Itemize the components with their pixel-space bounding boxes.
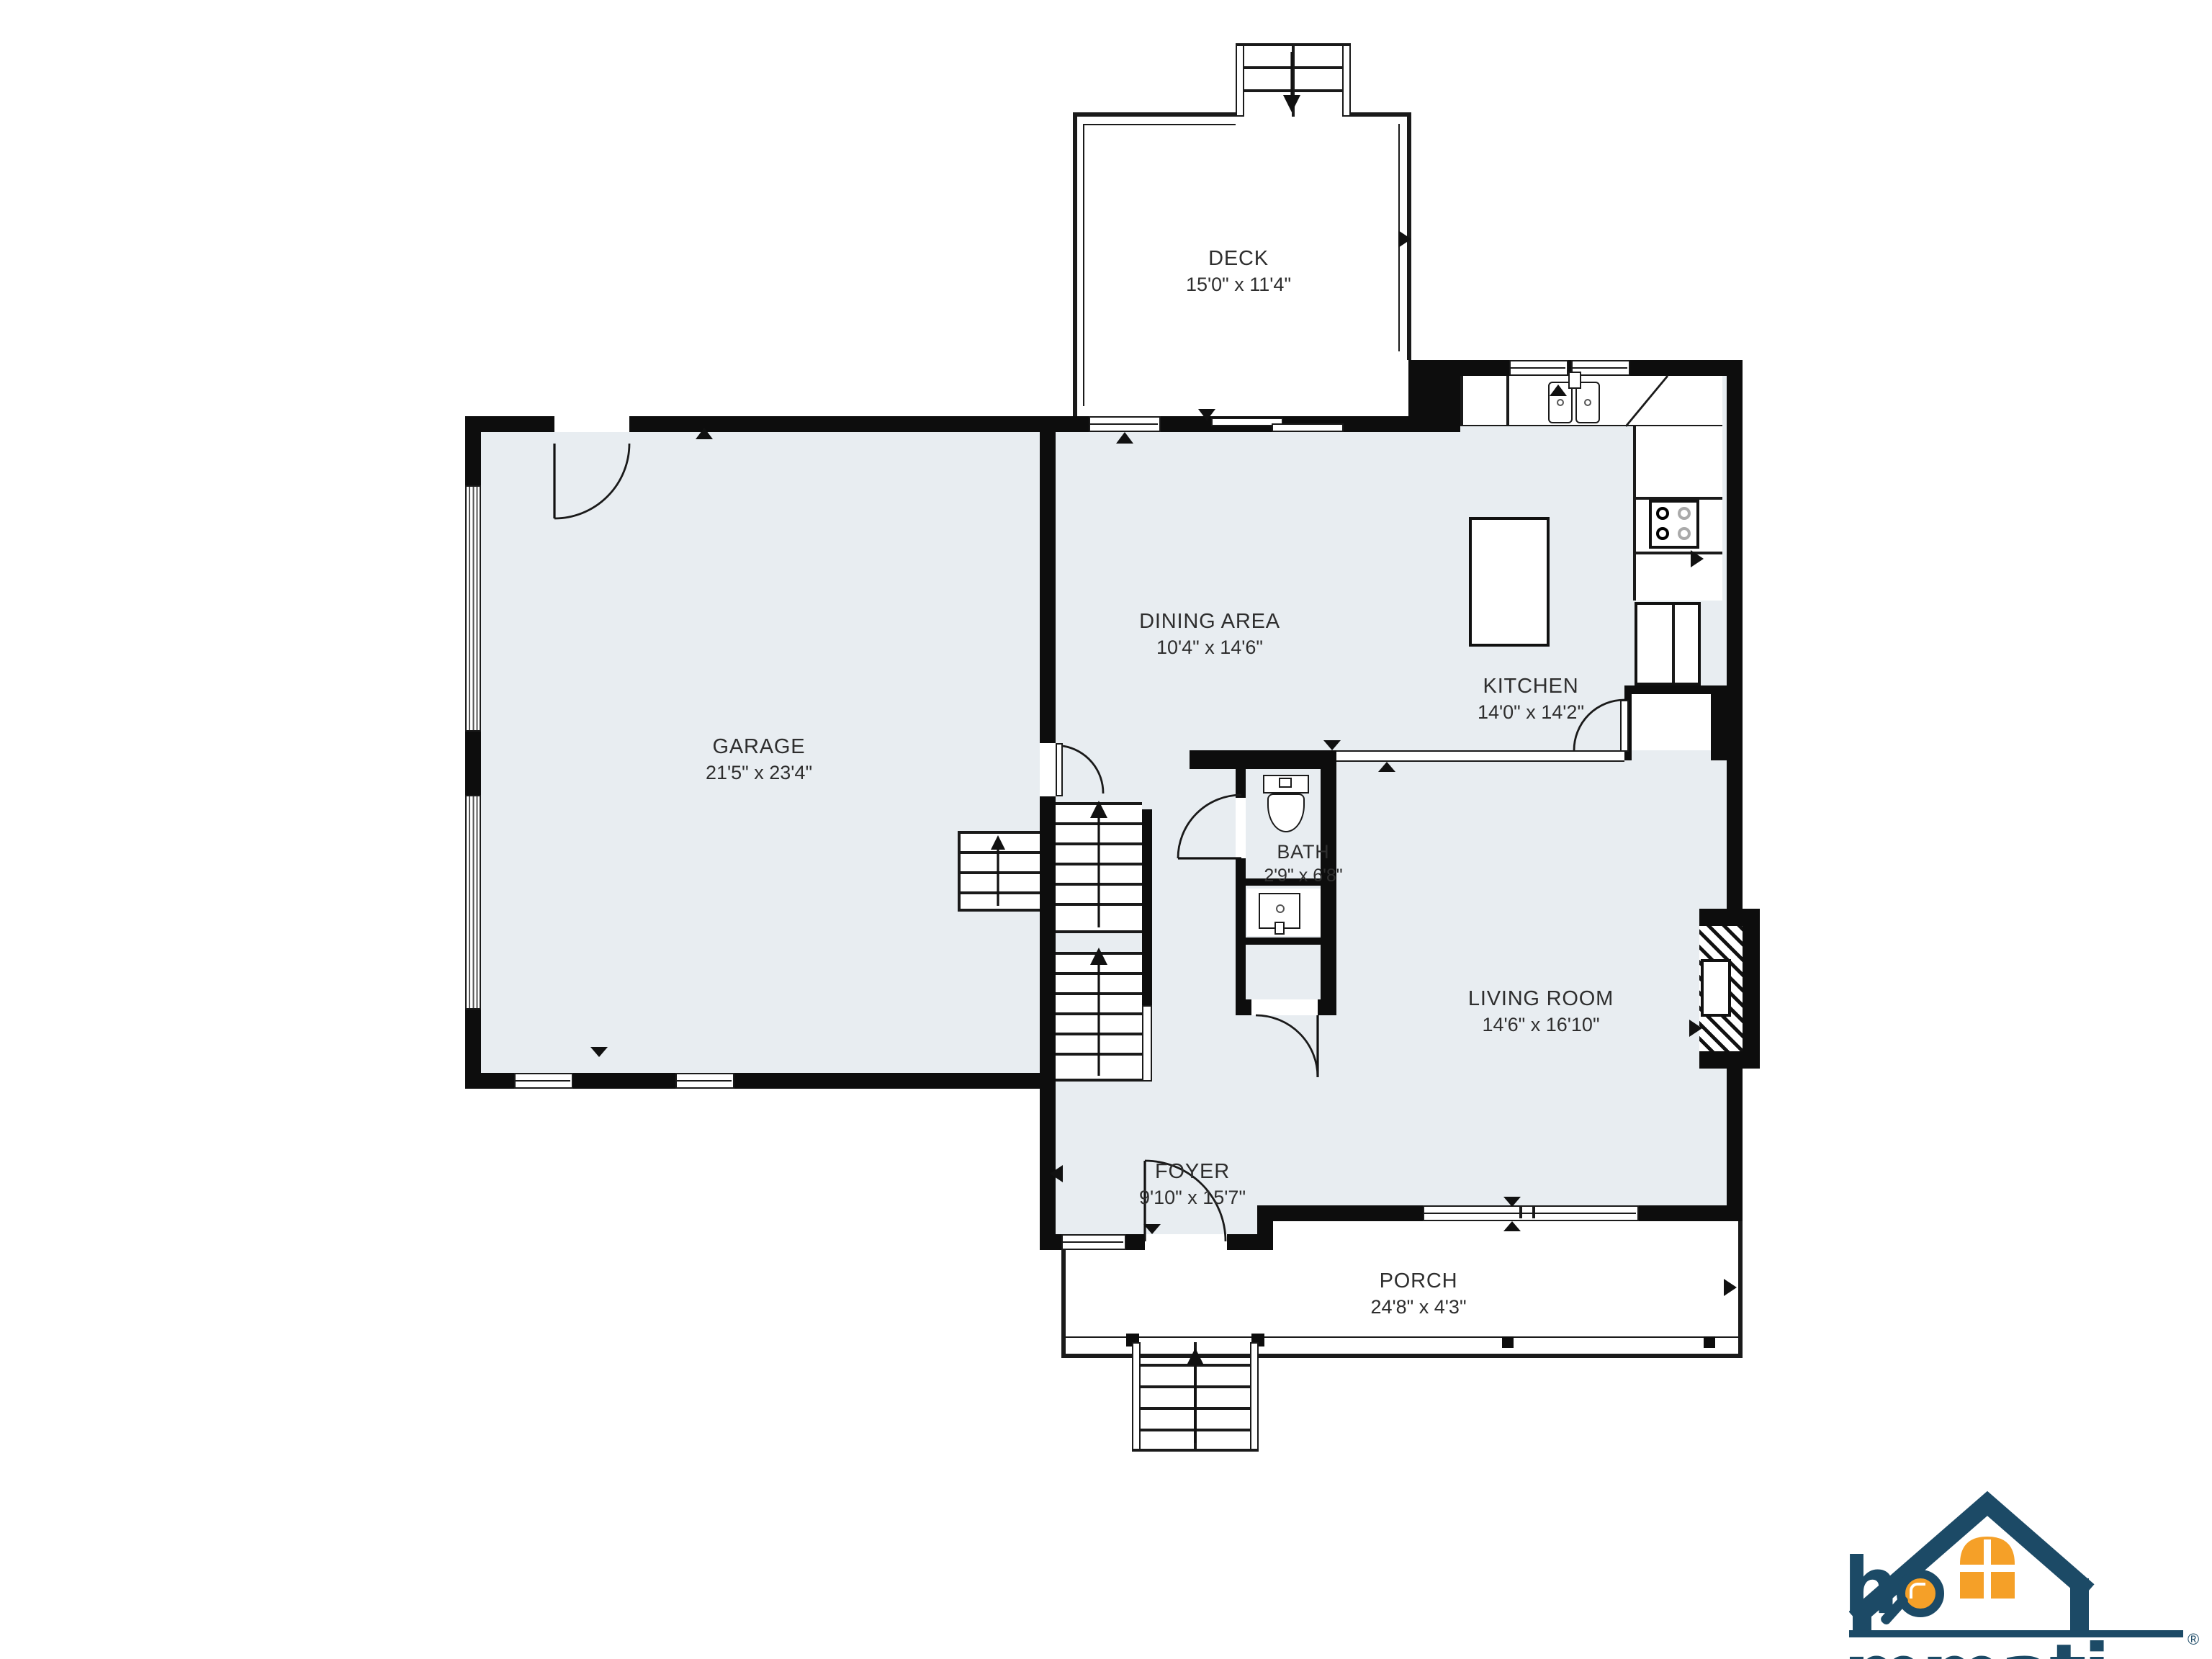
room-name: GARAGE	[706, 736, 812, 759]
floor-plan: DECK 15'0" x 11'4" GARAGE 21'5" x 23'4" …	[0, 0, 2212, 1659]
marker-triangle	[1398, 230, 1411, 248]
room-name: LIVING ROOM	[1468, 988, 1614, 1011]
stair-door-swing	[1063, 746, 1103, 793]
room-label-deck: DECK 15'0" x 11'4"	[1186, 248, 1291, 295]
room-dims: 14'6" x 16'10"	[1468, 1014, 1614, 1035]
garage-entry-door-swing	[554, 444, 629, 518]
room-dims: 10'4" x 14'6"	[1139, 637, 1280, 658]
closet-door-swing	[1256, 1015, 1318, 1077]
marker-triangle	[1378, 762, 1395, 772]
marker-triangle	[1550, 385, 1567, 396]
room-label-porch: PORCH 24'8" x 4'3"	[1370, 1270, 1466, 1318]
hommati-logo: hmmati ®	[1840, 1480, 2203, 1656]
marker-triangle	[1050, 1165, 1063, 1182]
room-label-living: LIVING ROOM 14'6" x 16'10"	[1468, 988, 1614, 1035]
room-label-garage: GARAGE 21'5" x 23'4"	[706, 736, 812, 783]
room-dims: 2'9" x 6'8"	[1264, 866, 1342, 886]
annotation-overlay	[0, 0, 2212, 1659]
logo-underline	[1849, 1630, 2183, 1637]
room-name: FOYER	[1139, 1161, 1246, 1184]
marker-triangle	[696, 428, 713, 439]
marker-triangle	[1503, 1197, 1521, 1207]
marker-triangle	[1724, 1279, 1737, 1296]
marker-triangle	[1116, 432, 1133, 444]
room-name: PORCH	[1370, 1270, 1466, 1293]
stairs-up-arrow	[1090, 801, 1107, 927]
room-label-foyer: FOYER 9'10" x 15'7"	[1139, 1161, 1246, 1208]
garage-stairs-up-arrow	[991, 835, 1005, 906]
marker-triangle	[1198, 409, 1215, 421]
marker-triangle	[1689, 1020, 1702, 1037]
room-name: BATH	[1264, 841, 1342, 863]
marker-triangle	[1323, 740, 1341, 750]
room-dims: 24'8" x 4'3"	[1370, 1296, 1466, 1318]
room-label-dining: DINING AREA 10'4" x 14'6"	[1139, 611, 1280, 658]
room-label-bath: BATH 2'9" x 6'8"	[1264, 841, 1342, 886]
room-dims: 21'5" x 23'4"	[706, 762, 812, 783]
room-name: KITCHEN	[1478, 675, 1584, 698]
room-label-kitchen: KITCHEN 14'0" x 14'2"	[1478, 675, 1584, 723]
room-name: DECK	[1186, 248, 1291, 271]
room-dims: 14'0" x 14'2"	[1478, 701, 1584, 723]
marker-triangle	[1503, 1221, 1521, 1231]
magnifier-icon	[1897, 1570, 1944, 1617]
logo-wordmark: hmmati	[1843, 1544, 2203, 1659]
marker-triangle	[590, 1047, 608, 1057]
registered-trademark: ®	[2188, 1632, 2199, 1649]
marker-triangle	[1691, 550, 1704, 567]
counter-corner-line	[1626, 376, 1668, 426]
bath-door-swing	[1178, 795, 1241, 858]
room-name: DINING AREA	[1139, 611, 1280, 634]
stairs-up-arrow	[1090, 948, 1107, 1076]
room-dims: 9'10" x 15'7"	[1139, 1187, 1246, 1208]
front-steps-up-arrow	[1187, 1348, 1204, 1443]
floor-plan-page: DECK 15'0" x 11'4" GARAGE 21'5" x 23'4" …	[0, 0, 2212, 1659]
room-dims: 15'0" x 11'4"	[1186, 274, 1291, 295]
deck-stairs-down-arrow	[1283, 52, 1300, 112]
